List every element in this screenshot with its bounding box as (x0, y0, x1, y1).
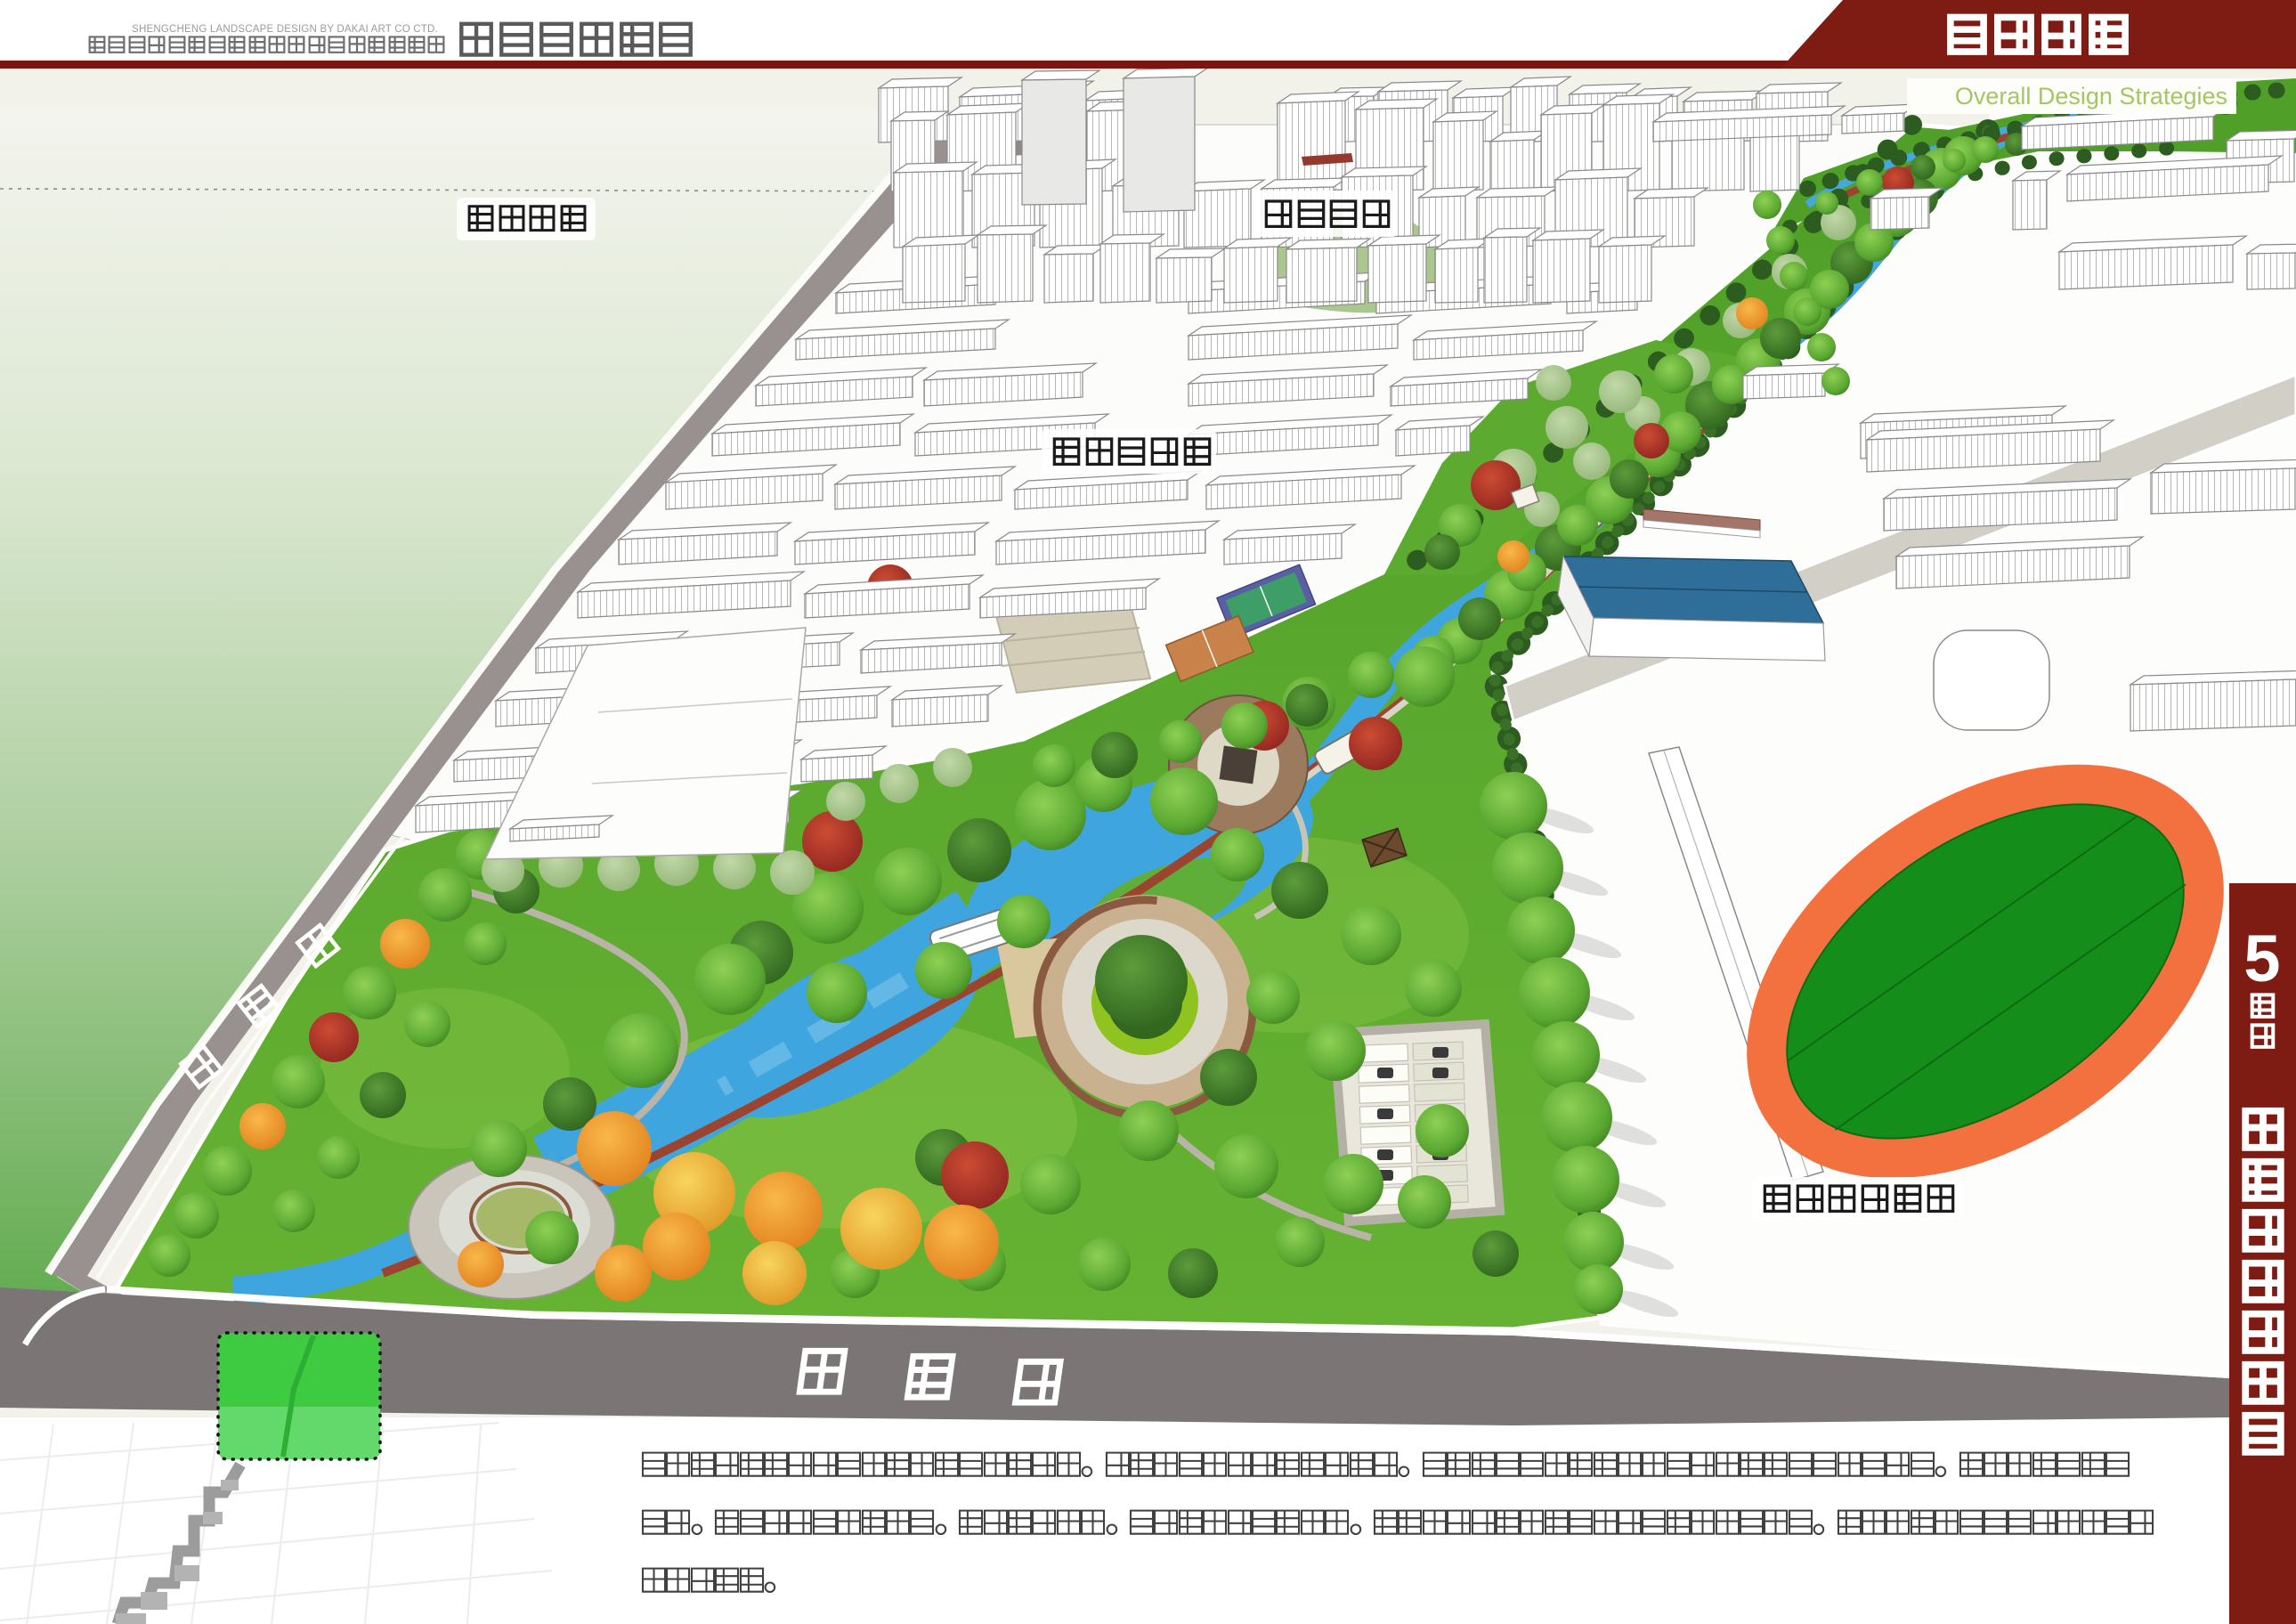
svg-text:Overall Design Strategies: Overall Design Strategies (1955, 83, 2227, 110)
svg-text:5: 5 (2243, 922, 2280, 995)
svg-text:SHENGCHENG LANDSCAPE DESIGN BY: SHENGCHENG LANDSCAPE DESIGN BY DAKAI ART… (132, 24, 438, 35)
